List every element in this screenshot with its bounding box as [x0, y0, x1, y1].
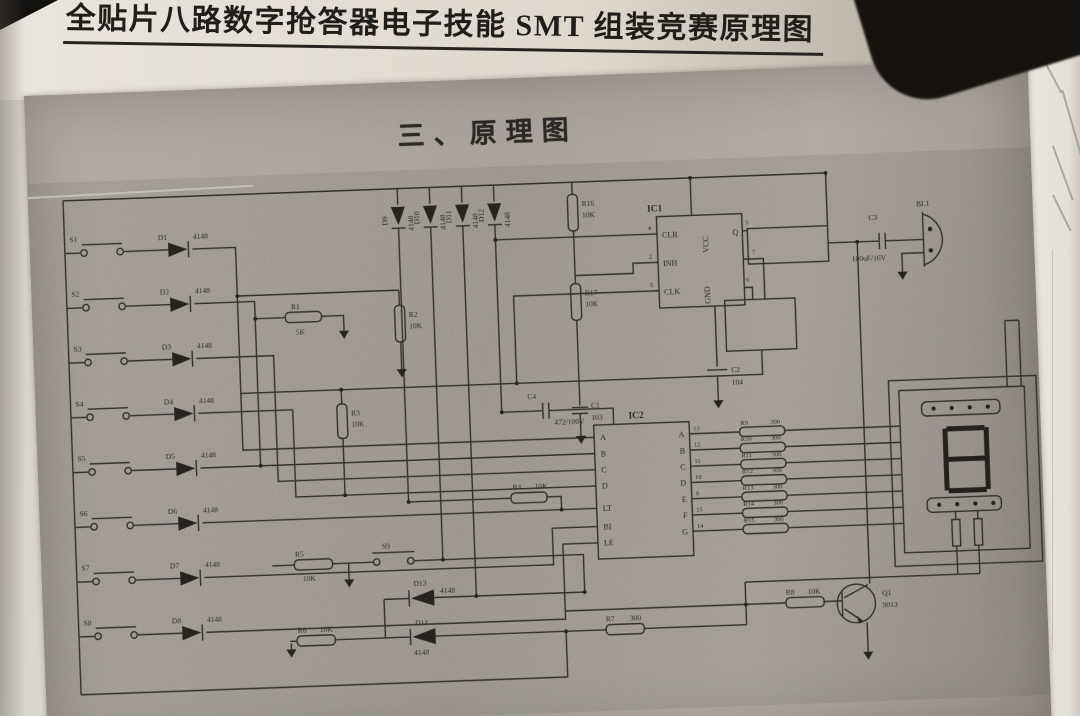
section-heading: 三、原理图 — [397, 108, 578, 154]
circuit-schematic: R1 5K R2 10K R3 10K R4 10K R16 10K R17 1… — [27, 147, 1050, 716]
schematic-scan: 三、原理图 R1 5K R2 10K — [24, 59, 1052, 716]
photo-edge-shadow — [0, 0, 26, 716]
photo-canvas: 全贴片八路数字抢答器电子技能 SMT 组装竞赛原理图 三、原理图 R1 5K — [0, 0, 1080, 716]
scan-grain — [27, 147, 1050, 716]
paper-crease — [1052, 250, 1053, 650]
